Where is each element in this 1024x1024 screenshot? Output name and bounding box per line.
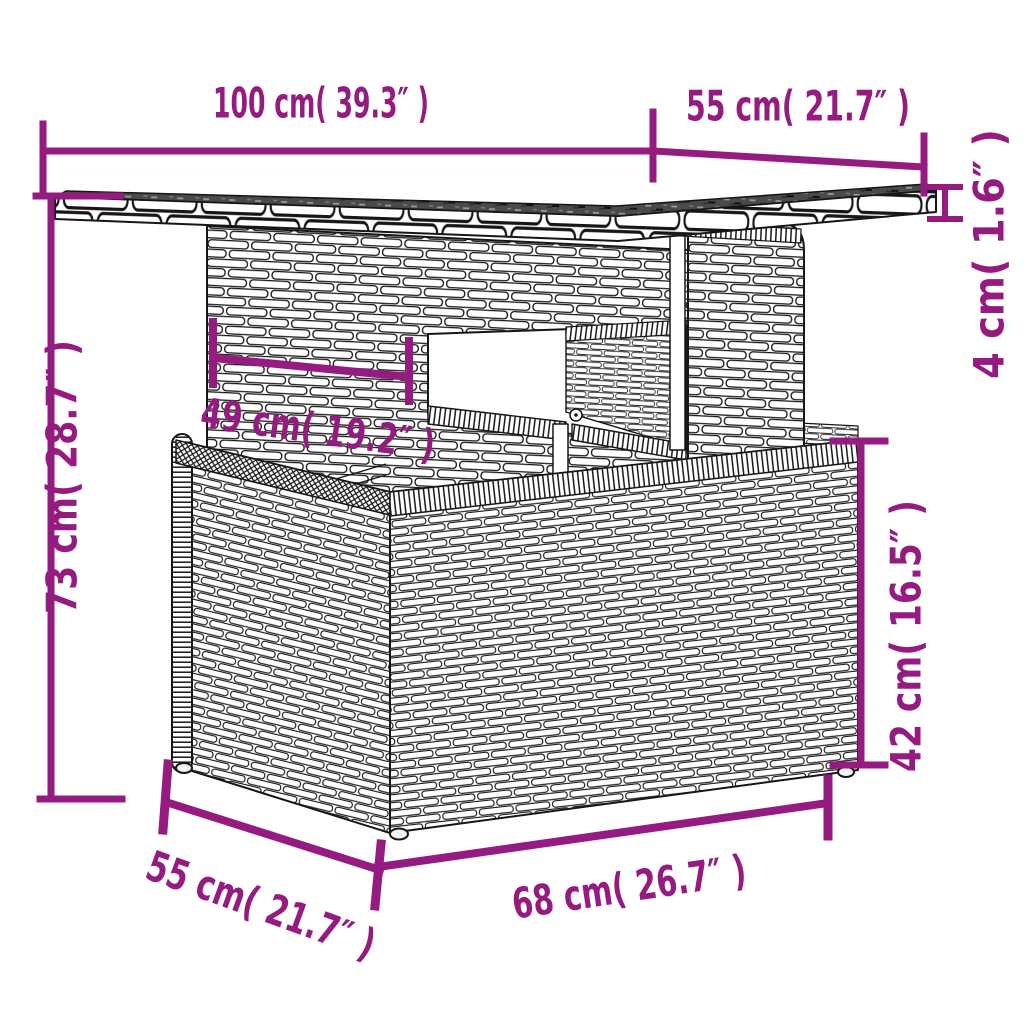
product-dimension-diagram: 100 cm( 39.3″ ) 55 cm( 21.7″ ) 4 cm( 1.6… (0, 0, 1024, 1024)
dim-label-base-width: 68 cm( 26.7″ ) (509, 845, 750, 928)
foot-left (176, 763, 192, 773)
dimension-tabletop-width: 100 cm( 39.3″ ) (43, 79, 653, 190)
rail-bracket-pin (574, 413, 578, 417)
dim-label-tabletop-thickness: 4 cm( 1.6″ ) (965, 129, 1014, 379)
tabletop (55, 184, 936, 241)
base-box (172, 434, 858, 840)
pedestal-column (688, 224, 804, 470)
base-left-corner-tube (172, 434, 192, 772)
dimension-total-height: 73 cm( 28.7″ ) (36, 196, 122, 799)
foot-front (390, 829, 408, 840)
dim-label-tabletop-width: 100 cm( 39.3″ ) (213, 79, 429, 128)
dimension-tabletop-thickness: 4 cm( 1.6″ ) (930, 129, 1014, 379)
dim-label-base-height: 42 cm( 16.5″ ) (882, 500, 931, 772)
dimension-tabletop-depth: 55 cm( 21.7″ ) (653, 82, 924, 194)
dim-label-total-height: 73 cm( 28.7″ ) (38, 340, 87, 614)
pedestal-corner-post (670, 228, 685, 450)
table-illustration (55, 184, 936, 840)
dim-label-tabletop-depth: 55 cm( 21.7″ ) (686, 82, 910, 131)
pedestal-post (553, 424, 568, 474)
